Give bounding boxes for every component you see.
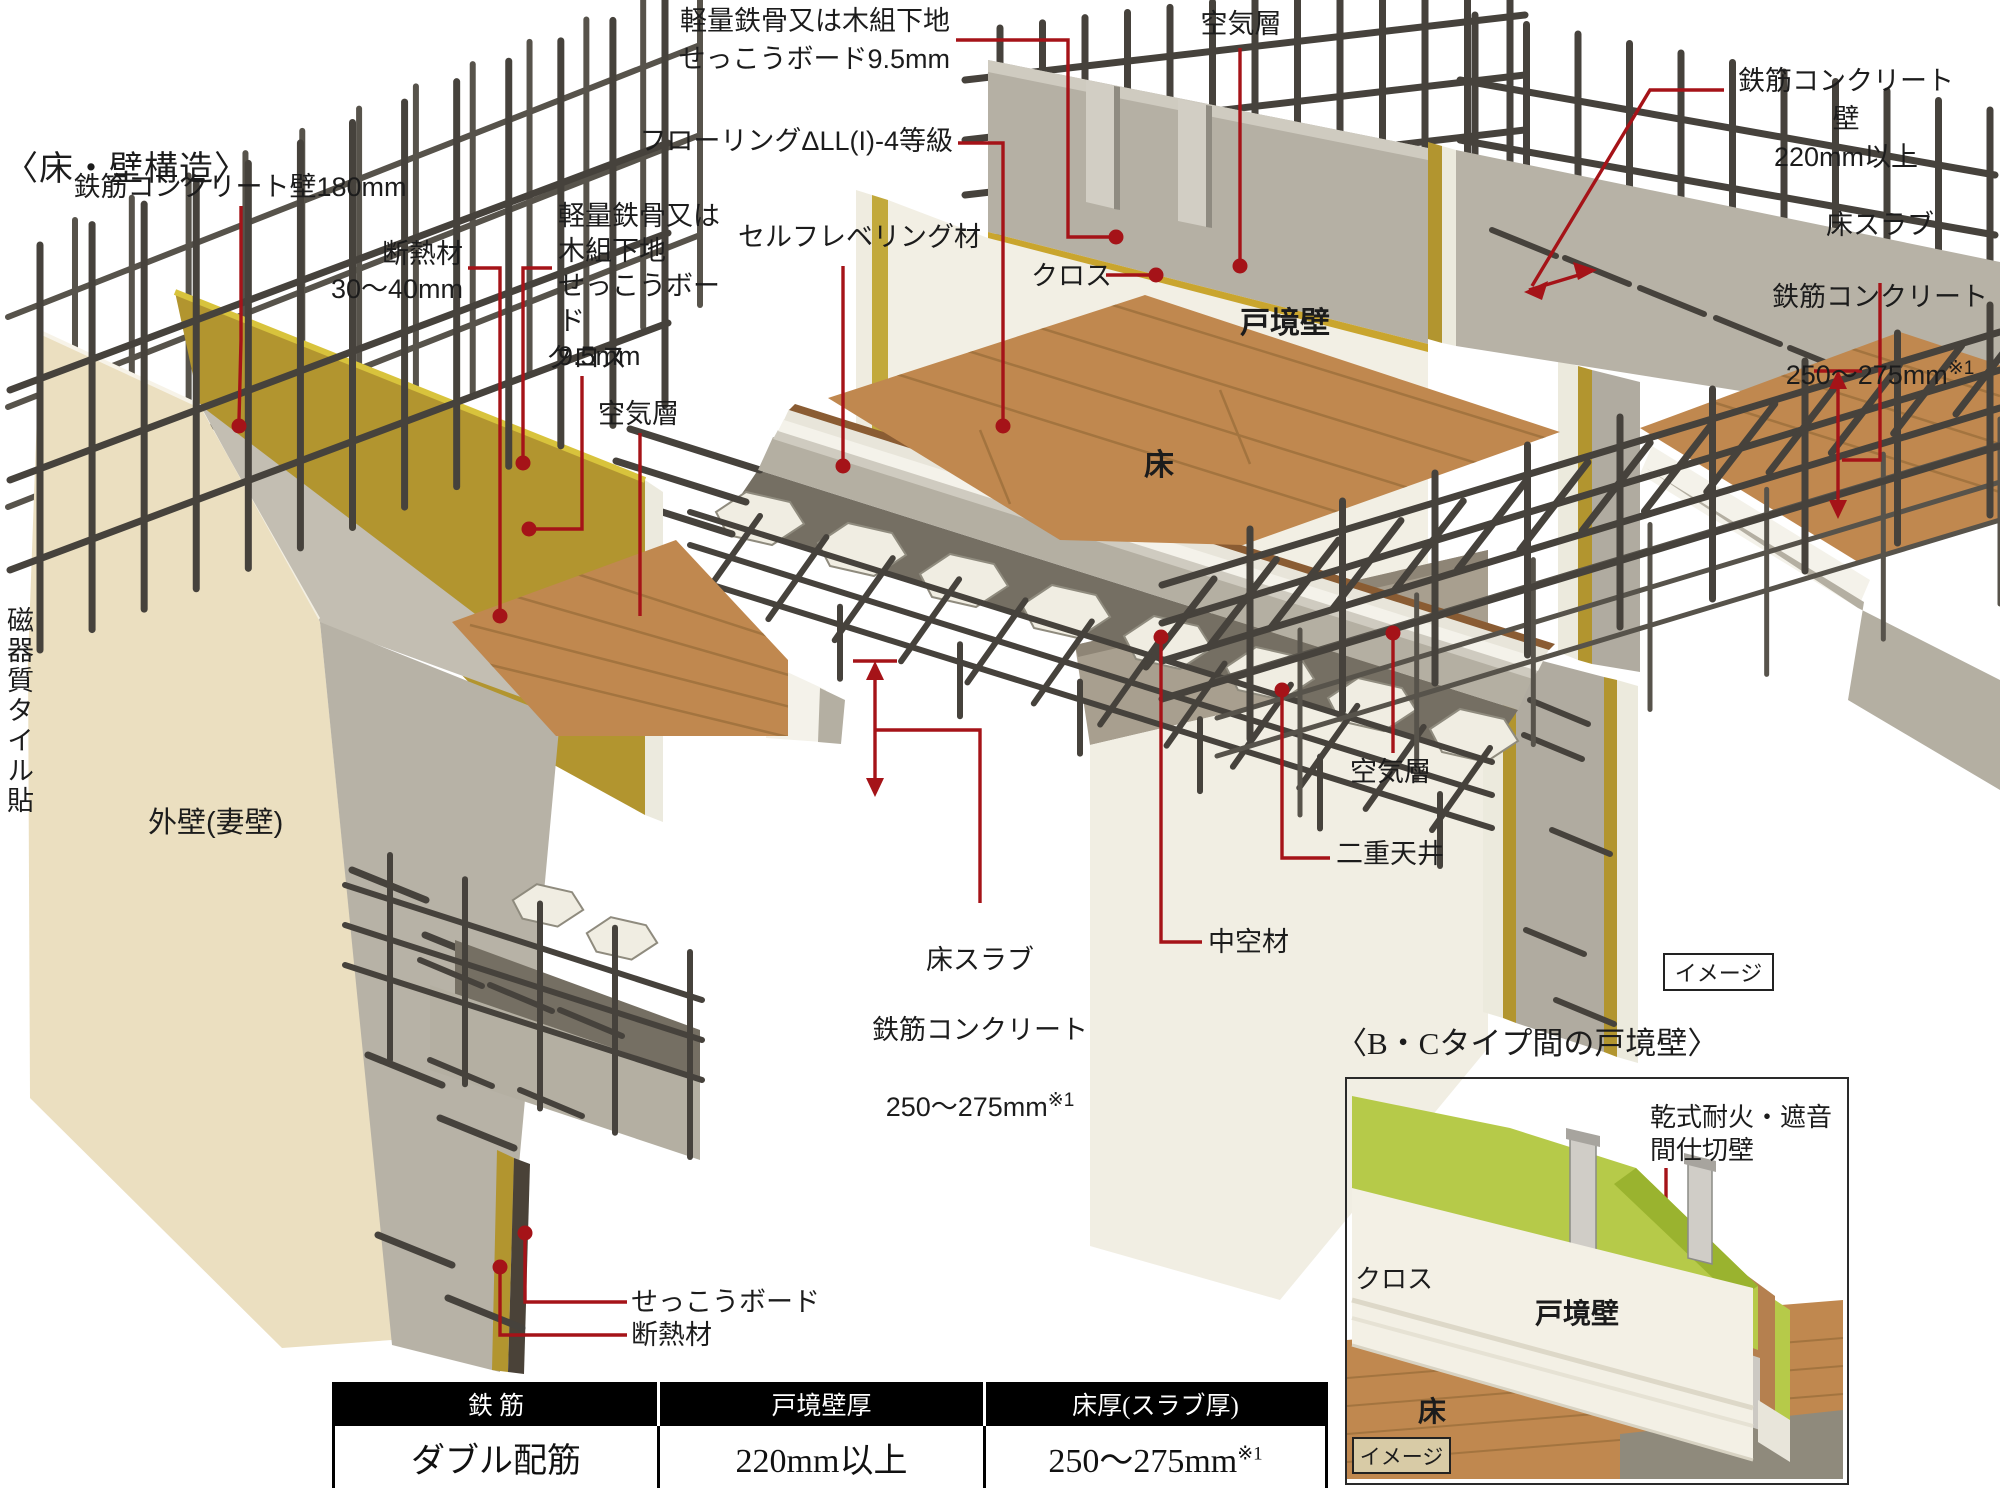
image-tag-main: イメージ: [1663, 953, 1774, 991]
callout-gypsum-board-bottom: せっこうボード: [631, 1285, 820, 1320]
callout-hollow-material: 中空材: [1208, 925, 1289, 960]
callout-air-layer-left: 空気層: [598, 397, 679, 432]
party-wall-upper-section: [1558, 360, 1640, 672]
table-header-slab-thickness: 床厚(スラブ厚): [985, 1384, 1327, 1425]
callout-slab-right: 床スラブ 鉄筋コンクリート 250〜275mm※1: [1763, 171, 1997, 429]
table-cell-wall-thickness: 220mm以上: [659, 1425, 985, 1488]
callout-slab-center: 床スラブ 鉄筋コンクリート 250〜275mm※1: [858, 908, 1102, 1160]
page: 〈床・壁構造〉 鉄筋コンクリート壁180mm 断熱材 30〜40mm 軽量鉄骨又…: [0, 0, 2000, 1488]
callout-tile-finish: 磁器質タイル貼: [0, 606, 35, 816]
table-cell-rebar: ダブル配筋: [334, 1425, 659, 1488]
figure-label-floor: 床: [1144, 448, 1174, 483]
figure-label-partition-wall: 戸境壁: [1240, 306, 1330, 341]
callout-air-layer-right: 空気層: [1350, 755, 1431, 790]
callout-exterior-wall: 外壁(妻壁): [148, 806, 283, 841]
image-tag-inset: イメージ: [1352, 1437, 1451, 1474]
inset-cross-label: クロス: [1355, 1262, 1433, 1297]
inset-title: 〈B・Cタイプ間の戸境壁〉: [1336, 1026, 1718, 1061]
callout-self-leveling: セルフレベリング材: [738, 220, 981, 255]
callout-double-ceiling: 二重天井: [1336, 837, 1444, 872]
exterior-wall-assembly: [28, 292, 663, 1374]
callout-air-layer-top: 空気層: [1196, 7, 1286, 42]
table-cell-slab-thickness: 250〜275mm※1: [985, 1425, 1327, 1488]
table-header-wall-thickness: 戸境壁厚: [659, 1384, 985, 1425]
inset-floor-label: 床: [1418, 1394, 1446, 1429]
callout-lgs-board-top: 軽量鉄骨又は木組下地 せっこうボード9.5mm: [600, 2, 950, 78]
callout-cross-left: クロス: [546, 341, 627, 376]
inset-partition-label: 乾式耐火・遮音 間仕切壁: [1650, 1101, 1832, 1167]
callout-insulation-bottom: 断熱材: [631, 1318, 712, 1353]
table-header-rebar: 鉄 筋: [334, 1384, 659, 1425]
callout-rc-wall-180: 鉄筋コンクリート壁180mm: [60, 170, 420, 205]
callout-rc-wall-220: 鉄筋コンクリート壁 220mm以上: [1728, 62, 1964, 176]
callout-insulation-upper: 断熱材 30〜40mm: [258, 237, 463, 307]
callout-cross-center: クロス: [1031, 259, 1112, 294]
callout-flooring-grade: フローリングΔLL(I)-4等級: [585, 124, 953, 159]
spec-table: 鉄 筋 戸境壁厚 床厚(スラブ厚) ダブル配筋 220mm以上 250〜275m…: [332, 1382, 1328, 1488]
inset-wall-label: 戸境壁: [1535, 1296, 1619, 1331]
